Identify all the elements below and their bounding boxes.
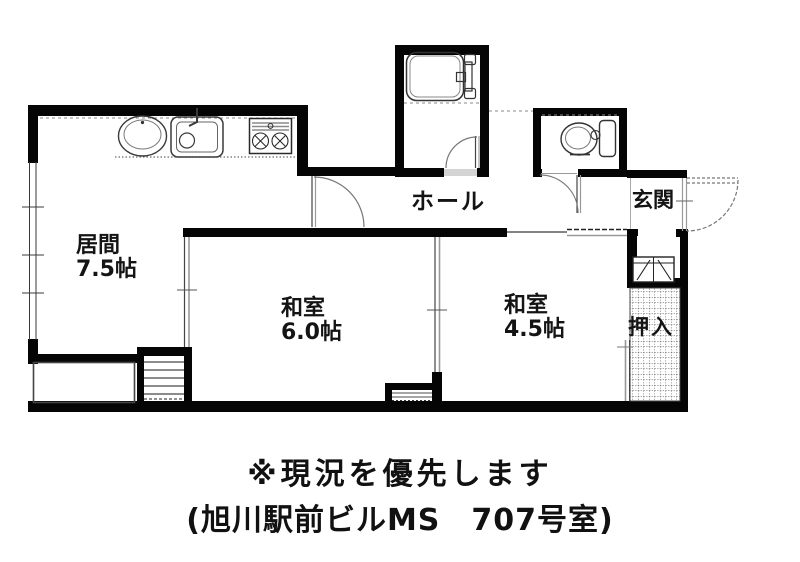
living-hall-door-icon[interactable] [312,176,364,227]
tatami45-room-name: 和室 [504,293,548,318]
staircase-icon [144,362,184,399]
bathtub-icon [407,53,476,101]
tatami45-room-size: 4.5帖 [504,317,565,342]
wall-inner-dashes [40,103,618,118]
fusuma-hall-tatami45-icon[interactable] [507,230,627,236]
living-room-name: 居間 [76,233,120,258]
caption-note: ※現況を優先します [0,449,800,493]
balcony-planter-icon [34,363,135,403]
living-room-label: 居間7.5帖 [76,234,137,282]
tatami45-room-label: 和室4.5帖 [504,294,565,342]
gas-stove-icon [250,119,292,154]
tatami6-room-size: 6.0帖 [281,320,342,345]
closet-label: 押入 [628,315,674,339]
floor-plan-page: 居間7.5帖 和室6.0帖 和室4.5帖 ホール 玄関 押入 ※現況を優先します… [0,0,800,562]
window-left-icon [22,162,44,340]
hall-label: ホール [411,190,486,214]
shoe-cabinet-icon [633,257,674,282]
tatami6-room-name: 和室 [281,296,325,321]
toilet-door-icon[interactable] [540,174,581,214]
living-room-size: 7.5帖 [76,257,137,282]
fusuma-living-tatami6-icon[interactable] [177,237,197,347]
toilet-icon [561,121,616,157]
entrance-label: 玄関 [632,188,674,212]
kitchen-sink-icon [171,108,223,157]
caption-building: (旭川駅前ビルMS 707号室) [0,495,800,539]
bathroom-door-icon[interactable] [444,136,479,176]
wash-basin-icon [119,116,167,156]
fusuma-tatami6-tatami45-icon[interactable] [427,237,447,372]
storage-step-icon [385,383,435,410]
tatami6-room-label: 和室6.0帖 [281,297,342,345]
closet-hatch [617,288,680,401]
